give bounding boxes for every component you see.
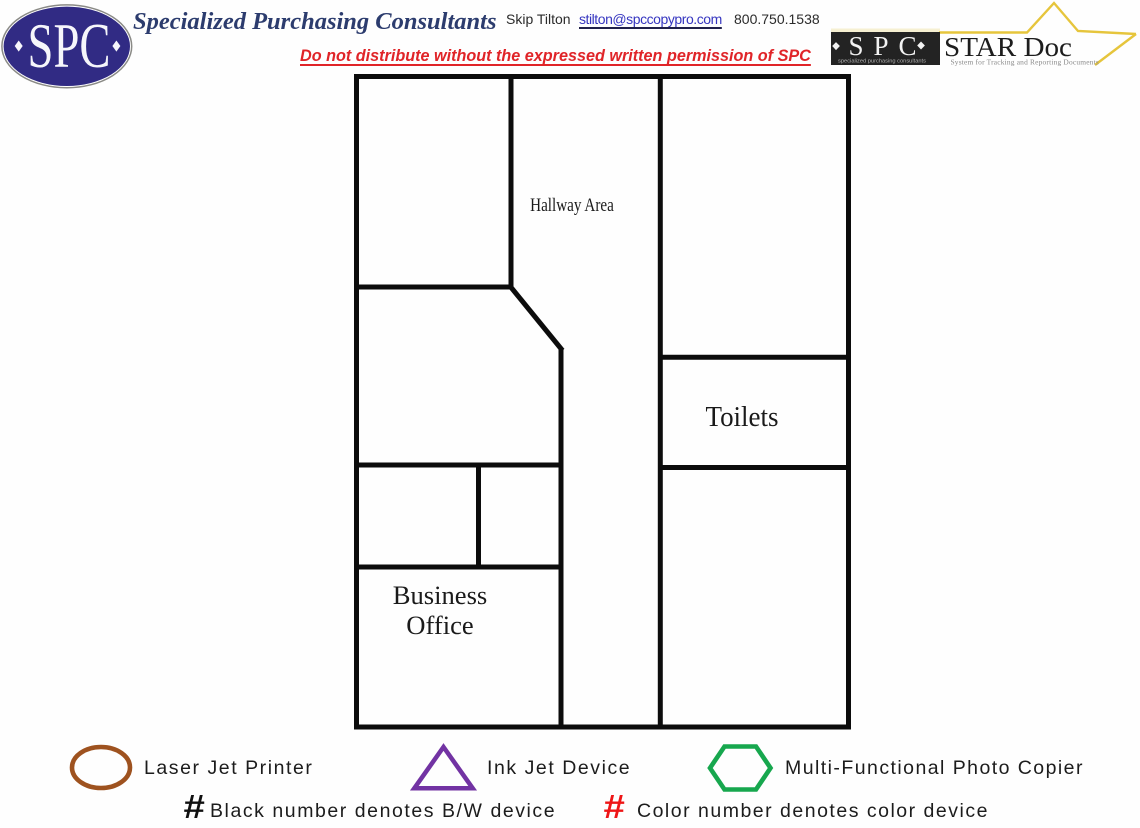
svg-text:System for Tracking and Report: System for Tracking and Reporting Docume…	[951, 58, 1099, 67]
svg-text:SPC: SPC	[28, 11, 111, 81]
svg-text:SPC: SPC	[849, 31, 917, 61]
